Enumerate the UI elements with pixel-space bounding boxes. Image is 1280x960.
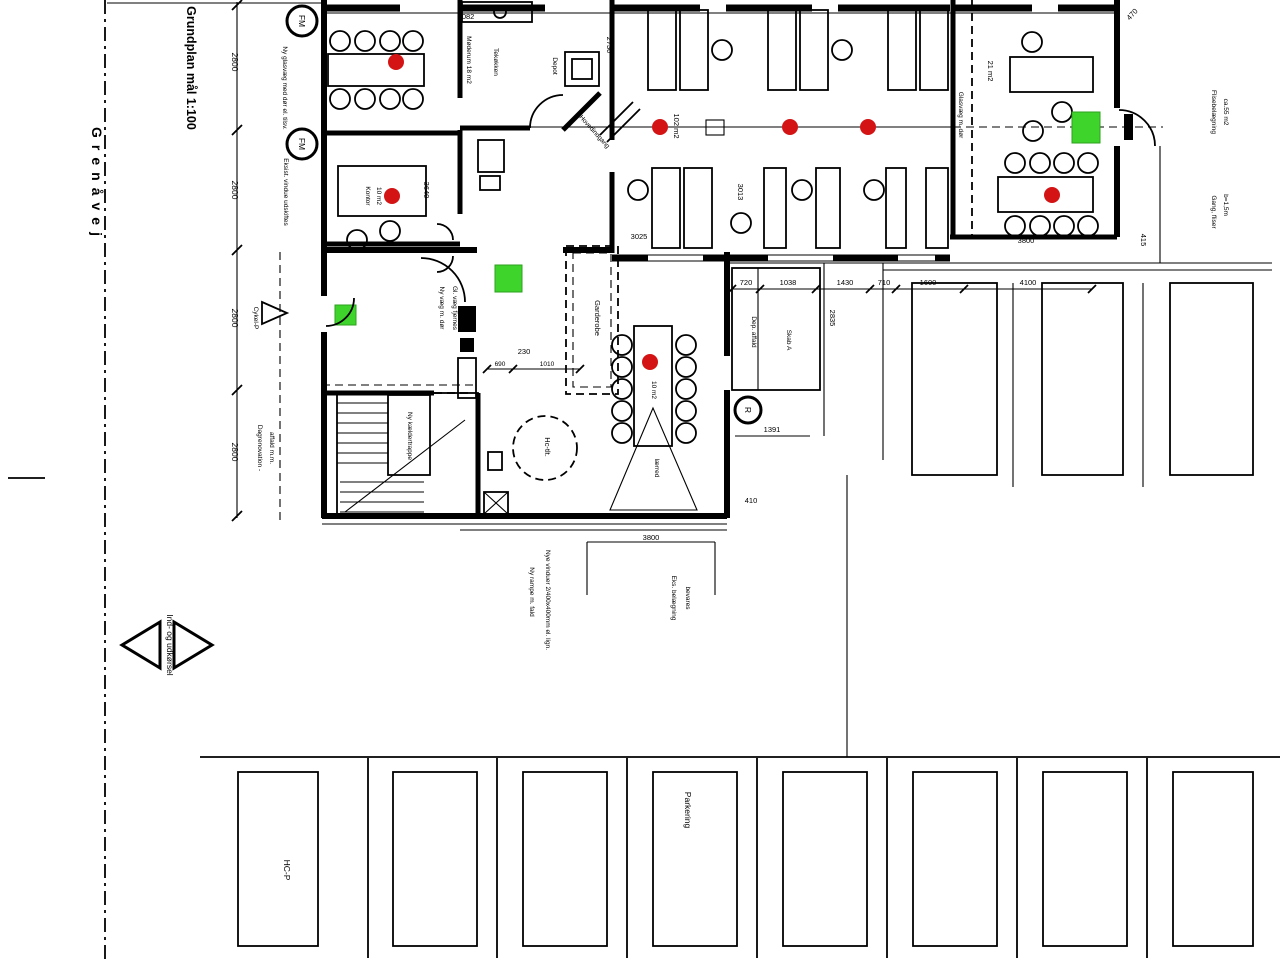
dim-label: 2800: [230, 443, 240, 462]
entry-mat-hatch: [600, 102, 633, 135]
screen-label: lærred: [653, 459, 660, 478]
dim-label: 2800: [230, 309, 240, 328]
dim-label: 415: [1139, 234, 1148, 247]
double-door-arc: [437, 224, 453, 240]
floor-plan-canvas: Grenåvej Grundplan mål 1:100 2800 2800 2…: [0, 0, 1280, 960]
arrow-left-icon: [122, 622, 160, 668]
parking-stall: [913, 772, 997, 946]
room-label: Depot: [551, 57, 558, 75]
room-label: Kontor: [364, 186, 371, 206]
south-notes: Ny rampe m. fald Nye vinduer 2/400x400mm…: [528, 550, 691, 650]
parking-stall: [653, 772, 737, 946]
parking-stall: [912, 283, 997, 475]
left-annotations: FM FM Ny glasvæg med dør el. tilsv. Eksi…: [252, 6, 317, 520]
left-dimension-chain: 2800 2800 2800 2800: [230, 0, 242, 521]
chairs: [330, 31, 423, 109]
note: Nye vinduer 2/400x400mm el. lign.: [544, 550, 551, 650]
dim-label: 2835: [828, 310, 837, 327]
east-parking: [727, 263, 1272, 757]
dim-label: 2800: [230, 181, 240, 200]
red-dot-marker[interactable]: [1044, 187, 1060, 203]
open-office-desks-north: [648, 10, 948, 90]
appliance-inner: [572, 59, 592, 79]
table: [328, 54, 424, 86]
parking-stall: [783, 772, 867, 946]
note-waste-2: affald m.m.: [268, 432, 275, 464]
parking-stall: [523, 772, 607, 946]
room-labels: Møderum 18 m2 Tekøkken Depot Kontor 10 m…: [364, 36, 995, 478]
dim-label: 3800: [1018, 236, 1035, 245]
street-name: Grenåvej: [89, 127, 105, 243]
stair-direction-line: [345, 420, 465, 512]
fixture: [480, 176, 500, 190]
shed-label: Dep. affald: [750, 316, 757, 348]
parking-stall: [1170, 283, 1253, 475]
dim-label: 1391: [764, 425, 781, 434]
wall-note: Gl. væg fjernes: [451, 286, 458, 331]
wall-note: Ny væg m. dør: [438, 287, 445, 331]
parking-stall: [1042, 283, 1123, 475]
red-dot-marker[interactable]: [388, 54, 404, 70]
corridor-benches: [458, 306, 476, 398]
note-waste-1: Dagrenovation -: [256, 425, 263, 471]
dim-label: 410: [745, 496, 758, 505]
entrance-label: Hovedindgang: [577, 114, 611, 150]
dimension-labels: 5082 2730 3640 3025 3013 470 415 3800 23…: [422, 7, 1148, 595]
dim-label: 3025: [631, 232, 648, 241]
note-window: Eksist. vindue udskiftes: [282, 158, 289, 226]
dim-label: 4100: [1020, 278, 1037, 287]
dim-label: 2800: [230, 53, 240, 72]
parking-stall: [1043, 772, 1127, 946]
parking-label: Parkering: [683, 792, 693, 829]
dim-label: 5082: [458, 12, 475, 21]
plan-title: Grundplan mål 1:100: [184, 6, 198, 130]
meeting-table-top-left: [328, 31, 424, 109]
room-label: 21 m2: [986, 61, 995, 82]
driveway-symbol: Ind- og udkørsel: [122, 614, 212, 676]
note: bevares: [684, 586, 691, 610]
room-label: Hc-tlt.: [543, 437, 552, 457]
markers: [335, 54, 1100, 370]
right-side-notes: Flisebelægning ca.55 m2 Gang, fliser b=1…: [1160, 90, 1229, 263]
red-dot-marker[interactable]: [642, 354, 658, 370]
dim-label: 3640: [422, 182, 431, 199]
fm-symbol-label: FM: [297, 138, 307, 150]
small-office-desk: [338, 166, 426, 250]
room-label: 10 m2: [375, 187, 382, 205]
open-office-desks-south: [628, 168, 948, 248]
chair: [380, 221, 400, 241]
note-glass-wall: Ny glasvæg med dør el. tilsv.: [281, 46, 288, 130]
dim-label: 3013: [736, 184, 745, 201]
red-dot-marker[interactable]: [384, 188, 400, 204]
dim-label: 690: [495, 361, 506, 368]
red-dot-marker[interactable]: [782, 119, 798, 135]
note-paving: ca.55 m2: [1222, 99, 1229, 126]
ramp-arrow: [262, 302, 287, 324]
site-lines: Grenåvej Grundplan mål 1:100: [8, 0, 322, 960]
parking-stall: [1173, 772, 1253, 946]
dim-label: 1038: [780, 278, 797, 287]
dim-label: 230: [518, 347, 531, 356]
appliance: [565, 52, 599, 86]
room-label: Møderum 18 m2: [465, 36, 472, 84]
dim-label: 2730: [605, 37, 614, 54]
driveway-label: Ind- og udkørsel: [165, 614, 175, 676]
waste-shed: R: [732, 268, 820, 423]
arrow-right-icon: [174, 622, 212, 668]
note: Ny rampe m. fald: [528, 567, 535, 617]
hc-parking-label: HC-P: [282, 860, 292, 881]
dim-label: 470: [1125, 7, 1140, 22]
parking-stall-hc: [238, 772, 318, 946]
room-label: Tekøkken: [492, 48, 499, 76]
red-dot-marker[interactable]: [860, 119, 876, 135]
dim-label: 1430: [837, 278, 854, 287]
table: [1010, 57, 1093, 92]
note-paving: Flisebelægning: [1210, 90, 1217, 134]
wardrobe-closet: [566, 246, 618, 394]
dim-label: 1010: [540, 361, 555, 368]
note-glass-right: Glasvæg m. dør: [957, 92, 964, 139]
fm-symbol-label: FM: [297, 15, 307, 27]
building-walls: [322, 0, 1155, 530]
note-path: b=1,5m: [1222, 194, 1229, 216]
room-label: 102 m2: [672, 113, 681, 138]
green-marker[interactable]: [495, 265, 522, 292]
dim-label: 720: [740, 278, 753, 287]
shed-label: Skab A: [785, 330, 792, 351]
green-marker[interactable]: [1072, 112, 1100, 143]
stair-label: Ny kældertrappe: [406, 412, 413, 460]
note-bike: Cykel-P: [252, 307, 259, 330]
floor-plan-drawing: Grenåvej Grundplan mål 1:100 2800 2800 2…: [0, 0, 1280, 960]
red-dot-marker[interactable]: [652, 119, 668, 135]
fixture: [478, 140, 504, 172]
hc-toilet: [484, 416, 577, 514]
parking-stall: [393, 772, 477, 946]
dim-label: 3800: [643, 533, 660, 542]
room-label: Garderobe: [593, 300, 602, 336]
wing-long-table: [610, 326, 697, 510]
table-label: 10 m2: [650, 381, 657, 399]
dim-label: 710: [878, 278, 891, 287]
note: Eks. belægning: [670, 576, 677, 621]
south-parking: HC-P Parkering: [200, 757, 1280, 958]
r-symbol-label: R: [743, 407, 753, 413]
entry-door-arc: [530, 95, 563, 128]
note-path: Gang, fliser: [1210, 195, 1217, 229]
kitchen-fixtures: [462, 2, 599, 190]
